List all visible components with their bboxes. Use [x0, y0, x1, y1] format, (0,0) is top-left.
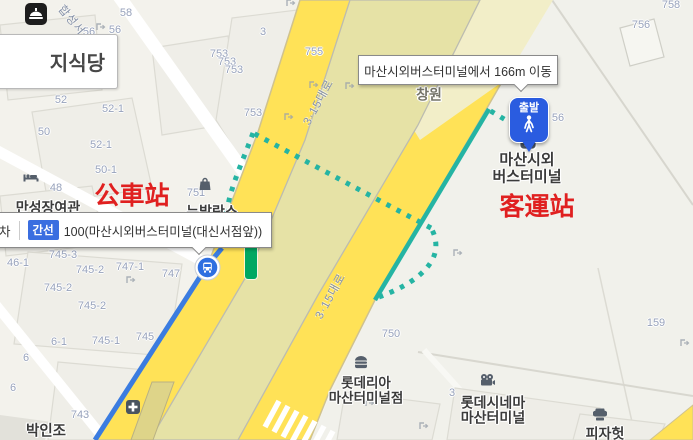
parcel-number: 48 — [50, 182, 62, 194]
entrance-icon — [309, 81, 319, 89]
parcel-number: 745-2 — [78, 300, 106, 312]
route-info-text: 마산시외버스터미널에서 166m 이동 — [364, 61, 552, 80]
lodging-icon — [24, 171, 39, 184]
poi-label-lotteria-masan-terminal: 마산터미널점 — [329, 391, 404, 406]
burger-icon — [354, 356, 369, 369]
parcel-number: 747-1 — [116, 261, 144, 273]
parcel-number: 6-1 — [51, 336, 67, 348]
departure-pin[interactable]: 출발 — [509, 97, 549, 152]
parcel-number: 50 — [38, 126, 50, 138]
parcel-number: 747 — [162, 268, 180, 280]
parcel-number: 753 — [244, 107, 262, 119]
bus-stop-icon[interactable] — [194, 254, 221, 281]
parcel-number: 758 — [662, 0, 680, 11]
bus-line-type-badge: 간선 — [28, 220, 59, 240]
entrance-icon — [286, 0, 296, 7]
boarding-prefix: 차 — [0, 221, 20, 240]
terminal-name-line1: 마산시외 — [499, 153, 554, 168]
poi-label-changwon-area: 창원 — [416, 88, 442, 103]
terminal-name-line2: 버스터미널 — [492, 170, 561, 185]
parcel-number: 745-2 — [76, 264, 104, 276]
restaurant-label: 지식당 — [50, 47, 105, 76]
departure-pin-label: 출발 — [510, 98, 548, 115]
entrance-icon — [680, 339, 690, 347]
entrance-icon — [345, 82, 355, 90]
poi-label-lotte-cinema-masan-terminal: 마산터미널 — [461, 411, 525, 426]
bus-stop-name-badge — [245, 243, 257, 279]
parcel-number: 46-1 — [7, 257, 29, 269]
boarding-route-text: 100(마산시외버스터미널(대신서점앞)) — [64, 221, 263, 240]
pedestrian-icon — [521, 115, 537, 133]
parcel-number: 753 — [225, 64, 243, 76]
parcel-number: 745-3 — [49, 249, 77, 261]
poi-label-pizza-hut: 피자헛 — [586, 427, 625, 440]
movie-camera-icon — [479, 374, 495, 387]
entrance-icon — [126, 276, 136, 284]
parcel-number: 159 — [647, 317, 665, 329]
parcel-number: 6 — [10, 382, 16, 394]
parcel-number: 750 — [382, 328, 400, 340]
bus-boarding-tooltip[interactable]: 차 간선 100(마산시외버스터미널(대신서점앞)) — [0, 212, 272, 248]
parcel-number: 745 — [136, 331, 154, 343]
annotation-bus-stop: 公車站 — [94, 176, 169, 212]
poi-label-lotte-cinema-masan-terminal: 롯데시네마 — [461, 396, 525, 411]
parcel-number: 756 — [632, 19, 650, 31]
poi-label-park-injo-clinic: 박인조 — [26, 425, 66, 440]
parcel-number: 6 — [23, 352, 29, 364]
shopping-bag-icon — [198, 177, 212, 191]
parcel-number: 755 — [305, 46, 323, 58]
medical-cross-icon — [126, 400, 141, 415]
parcel-number: 743 — [71, 409, 89, 421]
annotation-terminal: 客運站 — [499, 187, 574, 223]
parcel-number: 52-1 — [102, 103, 124, 115]
map-canvas[interactable]: 지식당 마산시외버스터미널에서 166m 이동 차 간선 100(마산시외버스터… — [0, 0, 693, 440]
pin-tail — [522, 141, 536, 152]
parcel-number: 3 — [260, 26, 266, 38]
restaurant-callout[interactable]: 지식당 — [0, 34, 118, 89]
parcel-number: 745-2 — [44, 282, 72, 294]
parcel-number: 50-1 — [95, 164, 117, 176]
entrance-icon — [419, 422, 429, 430]
entrance-icon — [96, 23, 106, 31]
entrance-icon — [453, 249, 463, 257]
parcel-number: 56 — [552, 112, 564, 124]
entrance-icon — [284, 113, 294, 121]
restaurant-icon — [24, 2, 48, 26]
parcel-number: 3 — [449, 387, 455, 399]
parcel-number: 745-1 — [92, 335, 120, 347]
parcel-number: 52 — [55, 94, 67, 106]
parcel-number: 52-1 — [90, 139, 112, 151]
route-info-tooltip[interactable]: 마산시외버스터미널에서 166m 이동 — [358, 55, 558, 85]
parcel-number: 58 — [120, 7, 132, 19]
chef-hat-icon — [593, 409, 607, 422]
poi-label-lotteria-masan-terminal: 롯데리아 — [341, 376, 391, 391]
